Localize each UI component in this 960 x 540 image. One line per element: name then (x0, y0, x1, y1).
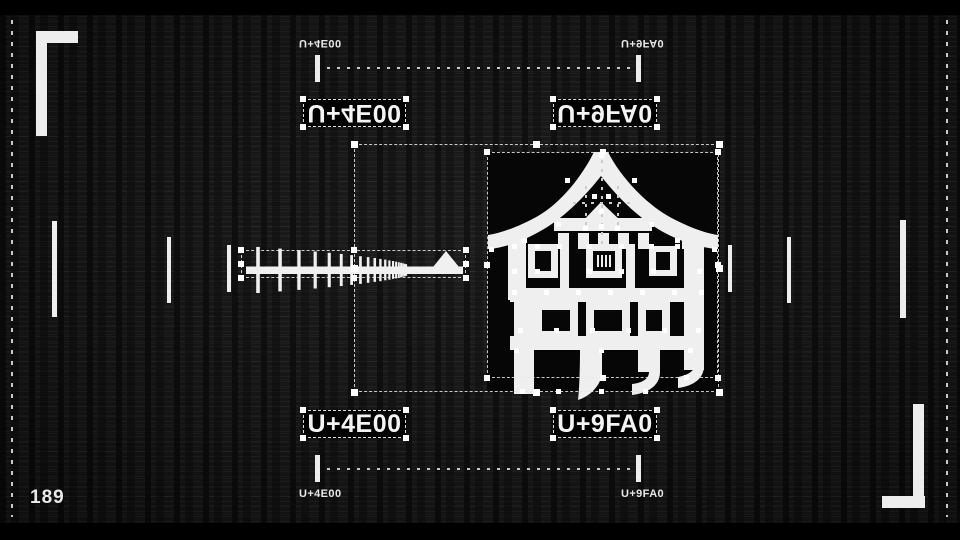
anchor-handle[interactable] (599, 153, 604, 158)
unicode-ruler-top: U+4E00 U+9FA0 U+4E00 U+9FA0 (0, 30, 960, 127)
anchor-handle[interactable] (696, 328, 701, 333)
selection-handle[interactable] (403, 96, 409, 102)
anchor-handle[interactable] (522, 238, 527, 243)
selection-handle[interactable] (484, 262, 490, 268)
ruler-side-tick (52, 221, 57, 317)
selection-handle[interactable] (484, 375, 490, 381)
selection-handle[interactable] (300, 407, 306, 413)
selection-handle[interactable] (654, 96, 660, 102)
anchor-handle[interactable] (697, 269, 702, 274)
anchor-handle[interactable] (688, 348, 693, 353)
selection-handle[interactable] (403, 124, 409, 130)
anchor-handle[interactable] (512, 244, 517, 249)
viewfinder-bracket-top-left-icon (36, 31, 78, 43)
ruler-tick-left (315, 55, 320, 82)
anchor-handle[interactable] (649, 222, 654, 227)
anchor-handle[interactable] (514, 348, 519, 353)
ruler-side-tick (728, 245, 732, 292)
unicode-caption-left: U+4E00 (299, 488, 341, 500)
anchor-handle[interactable] (608, 290, 613, 295)
selection-handle[interactable] (716, 141, 723, 148)
anchor-handle[interactable] (590, 328, 595, 333)
ruler-dotted-line (327, 468, 634, 470)
anchor-handle[interactable] (556, 222, 561, 227)
unicode-label-box-right[interactable]: U+9FA0 (553, 410, 657, 438)
selection-handle[interactable] (300, 96, 306, 102)
letterbox-bottom (0, 523, 960, 540)
selection-handle[interactable] (654, 124, 660, 130)
ruler-side-tick (900, 220, 906, 318)
selection-handle[interactable] (238, 247, 244, 253)
selection-handle[interactable] (351, 389, 358, 396)
ruler-tick-right (636, 55, 641, 82)
anchor-handle[interactable] (651, 269, 656, 274)
selection-handle[interactable] (351, 265, 358, 272)
anchor-handle[interactable] (599, 209, 604, 214)
selection-handle[interactable] (550, 124, 556, 130)
selection-handle[interactable] (715, 375, 721, 381)
unicode-caption-right: U+9FA0 (621, 37, 664, 49)
anchor-handle[interactable] (518, 328, 523, 333)
anchor-handle[interactable] (535, 269, 540, 274)
ruler-dotted-line (327, 67, 634, 69)
selection-handle[interactable] (403, 407, 409, 413)
selection-handle[interactable] (654, 435, 660, 441)
edge-dashed-line-left (11, 20, 13, 517)
selection-handle[interactable] (715, 262, 721, 268)
unicode-caption-right: U+9FA0 (621, 488, 664, 500)
anchor-handle[interactable] (512, 290, 517, 295)
anchor-handle[interactable] (583, 226, 588, 231)
ruler-side-tick (227, 245, 231, 292)
anchor-handle[interactable] (592, 194, 597, 199)
selection-handle[interactable] (403, 435, 409, 441)
anchor-handle[interactable] (599, 224, 604, 229)
anchor-handle[interactable] (640, 290, 645, 295)
selection-handle[interactable] (351, 275, 357, 281)
ruler-tick-right (636, 455, 641, 482)
canvas-guide-horizontal (573, 202, 630, 204)
anchor-handle[interactable] (632, 178, 637, 183)
anchor-handle[interactable] (643, 389, 648, 394)
unicode-label-text: U+9FA0 (557, 410, 652, 439)
anchor-handle[interactable] (544, 290, 549, 295)
anchor-handle[interactable] (599, 389, 604, 394)
viewfinder-bracket-top-left-icon (36, 31, 47, 136)
anchor-handle[interactable] (672, 290, 677, 295)
viewfinder-bracket-bottom-right-icon (913, 404, 924, 508)
letterbox-top (0, 0, 960, 15)
anchor-handle[interactable] (587, 269, 592, 274)
anchor-handle[interactable] (565, 178, 570, 183)
selection-handle[interactable] (550, 96, 556, 102)
selection-handle[interactable] (716, 389, 723, 396)
unicode-label-text: U+4E00 (307, 99, 401, 128)
anchor-handle[interactable] (587, 244, 592, 249)
anchor-handle[interactable] (606, 194, 611, 199)
anchor-handle[interactable] (626, 328, 631, 333)
selection-handle[interactable] (238, 261, 244, 267)
anchor-handle[interactable] (649, 244, 654, 249)
anchor-handle[interactable] (557, 244, 562, 249)
anchor-handle[interactable] (699, 290, 704, 295)
selection-handle[interactable] (600, 375, 606, 381)
selection-handle[interactable] (463, 275, 469, 281)
unicode-label-text: U+4E00 (307, 410, 401, 439)
selection-handle[interactable] (463, 261, 469, 267)
anchor-handle[interactable] (576, 290, 581, 295)
selection-handle[interactable] (533, 389, 540, 396)
selection-handle[interactable] (300, 435, 306, 441)
unicode-caption-left: U+4E00 (299, 37, 341, 49)
anchor-handle[interactable] (662, 328, 667, 333)
ruler-side-tick (167, 237, 171, 303)
selection-handle[interactable] (654, 407, 660, 413)
unicode-label-box-left[interactable]: U+4E00 (303, 99, 406, 127)
viewfinder-bracket-bottom-right-icon (882, 496, 925, 508)
anchor-handle[interactable] (619, 269, 624, 274)
selection-handle[interactable] (238, 275, 244, 281)
canvas-guide-vertical (617, 186, 619, 230)
edge-dashed-line-right (946, 20, 948, 517)
selection-handle[interactable] (550, 407, 556, 413)
selection-handle[interactable] (463, 247, 469, 253)
frame-counter: 189 (30, 487, 65, 509)
anchor-handle[interactable] (556, 389, 561, 394)
anchor-handle[interactable] (520, 389, 525, 394)
unicode-ruler-bottom: U+4E00 U+9FA0 U+4E00 U+9FA0 (0, 410, 960, 507)
anchor-handle[interactable] (512, 269, 517, 274)
unicode-label-box-right[interactable]: U+9FA0 (553, 99, 657, 127)
selection-handle[interactable] (351, 141, 358, 148)
anchor-handle[interactable] (599, 348, 604, 353)
selection-handle[interactable] (550, 435, 556, 441)
unicode-label-text: U+9FA0 (557, 99, 652, 128)
anchor-handle[interactable] (615, 226, 620, 231)
anchor-handle[interactable] (619, 244, 624, 249)
ruler-tick-left (315, 455, 320, 482)
anchor-handle[interactable] (489, 247, 494, 252)
selection-handle[interactable] (533, 141, 540, 148)
anchor-handle[interactable] (554, 328, 559, 333)
anchor-handle[interactable] (535, 244, 540, 249)
selection-handle[interactable] (484, 149, 490, 155)
video-frame: U+4E00 U+9FA0 U+4E00 U+9FA0 U+4E00 U+9FA… (0, 0, 960, 540)
canvas-guide-vertical (585, 186, 587, 230)
selection-handle[interactable] (715, 149, 721, 155)
anchor-handle[interactable] (712, 247, 717, 252)
anchor-handle[interactable] (684, 375, 689, 380)
unicode-label-box-left[interactable]: U+4E00 (303, 410, 406, 438)
ruler-side-tick (787, 237, 791, 303)
anchor-handle[interactable] (675, 238, 680, 243)
anchor-handle[interactable] (675, 244, 680, 249)
selection-handle[interactable] (351, 247, 357, 253)
selection-handle[interactable] (300, 124, 306, 130)
